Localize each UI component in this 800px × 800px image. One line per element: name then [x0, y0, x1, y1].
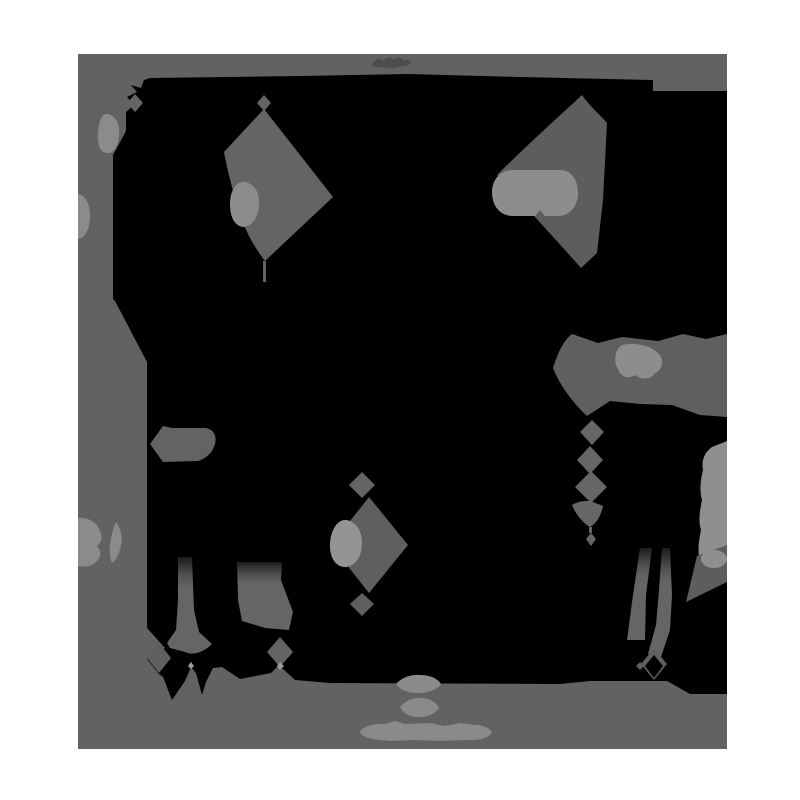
wall-highlight-blob — [701, 550, 727, 568]
chain-neck — [589, 527, 592, 533]
photo-canvas — [0, 0, 800, 800]
right-ear-highlight-pill — [492, 170, 578, 216]
center-bright-oval — [330, 520, 362, 567]
posterized-animal-photo — [0, 0, 800, 800]
left-ear-stem — [263, 261, 266, 282]
bokeh-blob-1 — [98, 114, 119, 153]
body-notch-shape — [150, 426, 216, 462]
